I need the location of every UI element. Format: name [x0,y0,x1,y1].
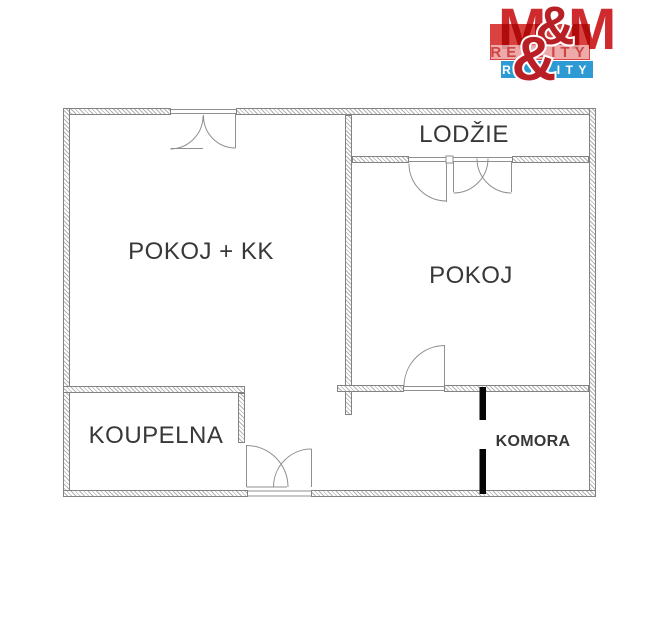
plan-details [0,0,658,633]
door-swing-arc [404,346,445,387]
komora-partition-bar [480,387,487,420]
floorplan-page: M M REALITY REALITY & & [0,0,658,633]
room-label-komora: KOMORA [496,433,571,451]
window-mullion [446,156,453,163]
window-swing-arc [454,159,489,194]
komora-partition-bar [480,449,487,494]
window-swing-arc [204,116,236,148]
window-swing-arc [171,116,204,149]
room-label-koupelna: KOUPELNA [89,422,224,450]
room-label-pokoj: POKOJ [429,262,513,290]
room-label-lodzie: LODŽIE [419,121,509,149]
door-swing-arc [247,446,289,488]
door-swing-arc [409,164,447,202]
room-label-pokoj-kk: POKOJ + KK [128,238,274,266]
door-swing-arc [274,449,312,487]
window-swing-arc [477,159,512,194]
